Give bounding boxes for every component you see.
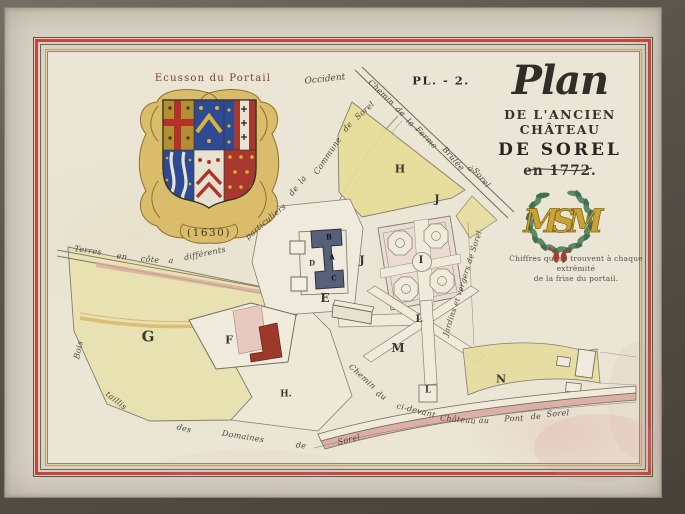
drawing-paper — [48, 52, 639, 463]
framed-map-photo: MSM Ecusson du Portail (1630) Occident P… — [0, 0, 685, 514]
